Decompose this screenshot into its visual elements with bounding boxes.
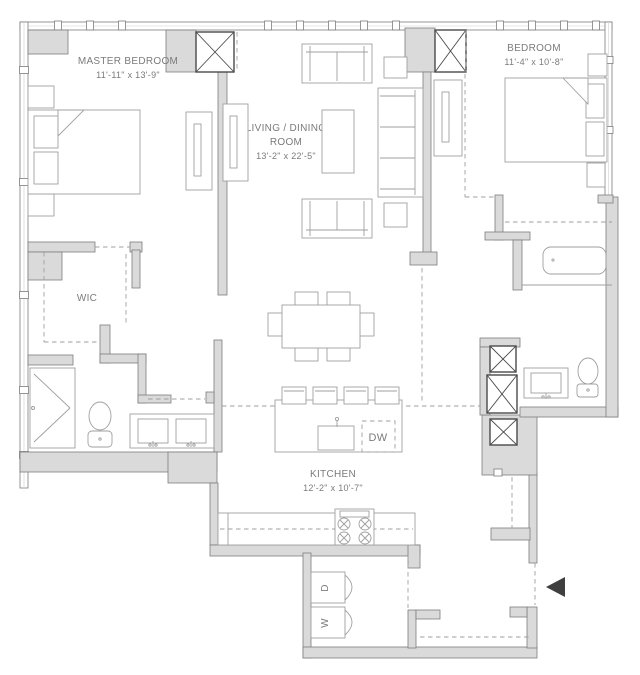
bathtub — [522, 247, 612, 285]
shower — [30, 368, 75, 448]
kitchen-labels: KITCHEN 12'-2" x 10'-7" — [303, 469, 363, 493]
floor-plan-page: MASTER BEDROOM 11'-11" x 13'-9" LIVING /… — [0, 0, 640, 675]
master-bedroom-name: MASTER BEDROOM — [78, 56, 178, 67]
side-table-top — [384, 57, 407, 78]
loveseat-bottom — [302, 199, 372, 238]
dining-table-set — [268, 292, 374, 361]
master-bedroom-labels: MASTER BEDROOM 11'-11" x 13'-9" — [78, 56, 178, 80]
bedroom-dresser — [434, 80, 462, 156]
living-dining-name-2: ROOM — [270, 137, 302, 148]
master-bed — [28, 86, 140, 216]
sofa — [378, 88, 423, 197]
dryer-unit: D — [311, 572, 352, 603]
toilet-master — [88, 402, 112, 447]
bathroom-2 — [522, 247, 612, 399]
loveseat-top — [302, 44, 372, 83]
washer-unit: W — [311, 607, 352, 638]
master-bedroom-dimensions: 11'-11" x 13'-9" — [96, 70, 160, 80]
washer-dryer-closet: D W — [311, 572, 352, 638]
master-bedroom-media-console — [186, 112, 212, 190]
bedroom-dimensions: 11'-4" x 10'-8" — [504, 57, 563, 67]
window-wall-left — [20, 22, 29, 488]
bedroom-labels: BEDROOM 11'-4" x 10'-8" — [504, 43, 563, 67]
living-dining-name-1: LIVING / DINING — [246, 123, 327, 134]
wic-label: WIC — [77, 293, 97, 304]
kitchen-dimensions: 12'-2" x 10'-7" — [303, 483, 363, 493]
elevator-shaft-2 — [435, 30, 466, 72]
vanity-2 — [524, 368, 568, 399]
dryer-label: D — [320, 584, 331, 592]
shaft-column — [487, 346, 517, 445]
toilet-2 — [577, 358, 598, 397]
living-room-media-console — [223, 104, 248, 181]
stove — [335, 509, 374, 545]
master-bathroom — [30, 368, 214, 448]
coffee-table — [322, 110, 354, 173]
living-dining-dimensions: 13'-2" x 22'-5" — [256, 151, 316, 161]
double-vanity — [130, 414, 214, 448]
side-table-bottom — [384, 203, 407, 227]
dishwasher-label: DW — [369, 432, 388, 444]
bedroom-bed — [505, 54, 607, 187]
kitchen-island: DW — [275, 387, 402, 452]
elevator-shaft-1 — [196, 32, 234, 72]
wic-name: WIC — [77, 293, 97, 304]
entry-arrow-icon — [546, 577, 565, 597]
bedroom-name: BEDROOM — [507, 43, 561, 54]
entry-marker — [546, 577, 565, 597]
window-wall-top — [20, 21, 612, 30]
kitchen-counter — [218, 509, 415, 545]
kitchen-name: KITCHEN — [310, 469, 356, 480]
floor-plan-drawing: MASTER BEDROOM 11'-11" x 13'-9" LIVING /… — [0, 0, 640, 675]
washer-label: W — [320, 618, 331, 628]
living-dining-labels: LIVING / DINING ROOM 13'-2" x 22'-5" — [246, 123, 327, 161]
